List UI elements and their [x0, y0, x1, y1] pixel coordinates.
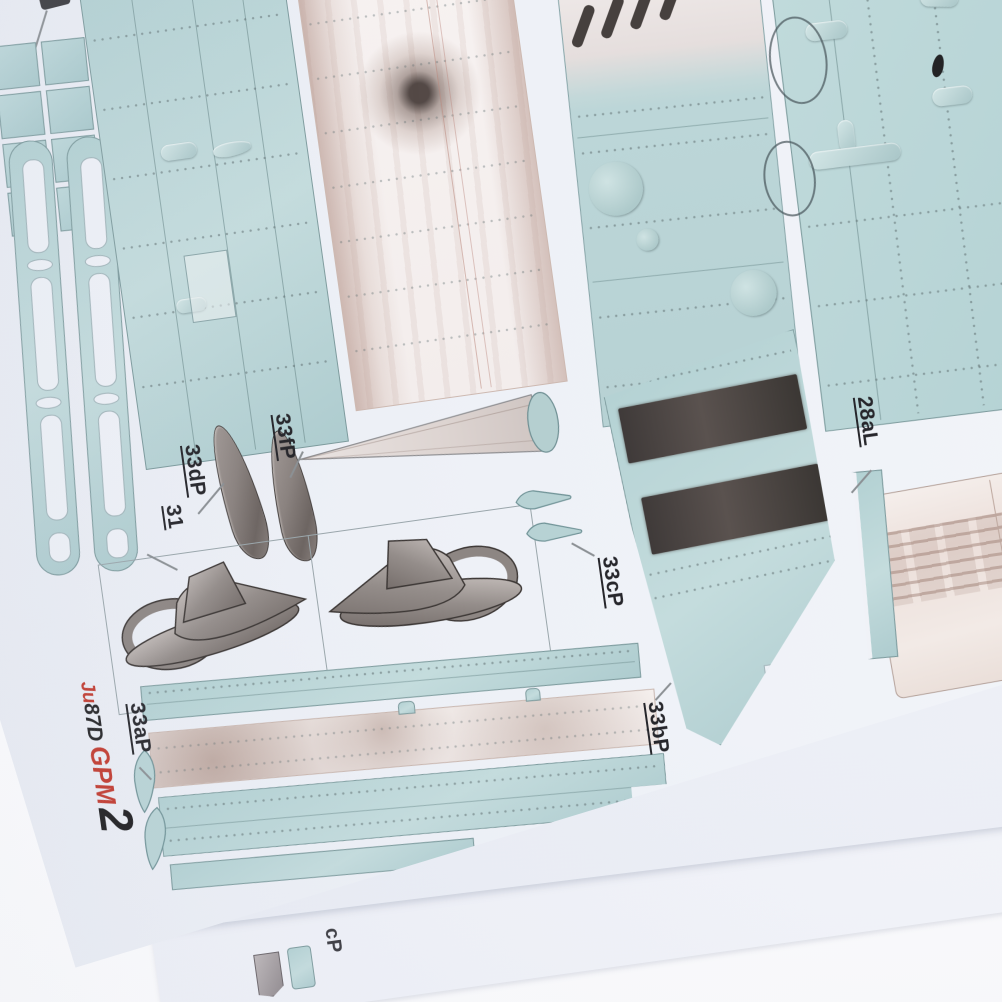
square-part	[0, 91, 45, 139]
radiator-ribs	[875, 500, 1002, 608]
hatch-pad	[931, 84, 973, 107]
small-part-teal	[287, 945, 317, 990]
photo-scene: cP	[0, 0, 1002, 1002]
exhaust-slot	[571, 4, 596, 49]
hatch-circle-small	[635, 228, 659, 252]
square-part	[41, 37, 89, 85]
part-label-partial: cP	[319, 926, 345, 954]
teardrop-bump	[212, 138, 252, 160]
exhaust-slot	[600, 0, 625, 40]
dark-band	[618, 374, 807, 464]
hatch-pad	[920, 0, 958, 7]
exhaust-slot	[658, 0, 683, 21]
logo-model: 87D	[79, 702, 107, 743]
square-part	[46, 86, 94, 134]
small-dark-part	[38, 0, 71, 11]
airfoil-cap	[511, 483, 577, 519]
square-part	[0, 42, 40, 90]
exhaust-slot	[629, 0, 654, 31]
hatch-circle	[728, 268, 779, 319]
weathered-panel-part	[296, 0, 568, 411]
part-label-33cP: 33cP	[597, 555, 628, 609]
logo-gpm: GPM	[84, 744, 122, 807]
strip-tab	[397, 700, 415, 714]
hatch-pad	[160, 141, 198, 162]
logo-sheet-number: 2	[89, 803, 144, 836]
small-part-grey	[253, 951, 285, 998]
part-label-31: 31	[160, 503, 187, 530]
hatch-outline	[183, 250, 236, 323]
hatch-circle	[586, 159, 645, 218]
strip-tab	[525, 687, 541, 701]
notch-slot	[764, 663, 783, 710]
